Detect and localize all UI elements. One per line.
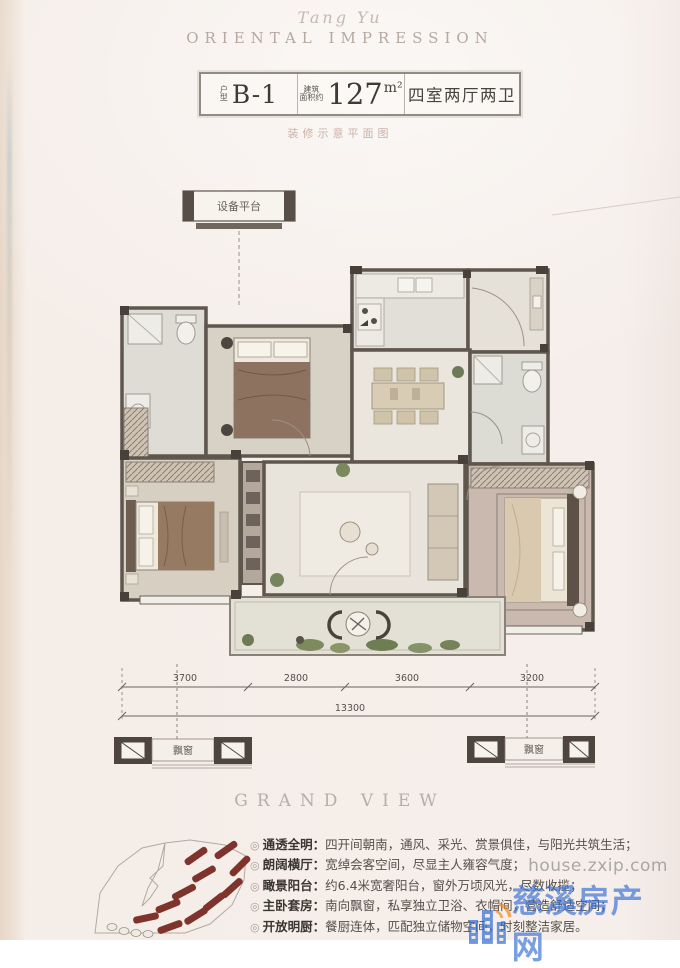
dim-total: 13300 <box>335 703 365 714</box>
watermark-site-name: 慈溪房产网 <box>512 876 676 968</box>
section-title: GRAND VIEW <box>0 791 680 811</box>
dim-3600: 3600 <box>395 673 419 684</box>
bay-window-right-label: 飘窗 <box>524 743 544 756</box>
dim-3700: 3700 <box>173 673 197 684</box>
bay-window-left-plan <box>140 596 232 604</box>
dimension-labels: 3700 2800 3600 3200 13300 <box>173 673 544 714</box>
room-entry <box>468 270 548 352</box>
bullet-icon: ◎ <box>250 900 260 913</box>
bullet-icon: ◎ <box>250 880 260 893</box>
bullet-icon: ◎ <box>250 839 260 852</box>
bay-window-detail-right: 飘窗 <box>467 736 595 767</box>
equipment-platform-label: 设备平台 <box>217 199 261 213</box>
room-bath-1 <box>122 308 206 458</box>
bay-window-detail-left: 飘窗 <box>114 737 252 768</box>
watermark-url: house.zxip.com <box>528 856 668 876</box>
equipment-platform: 设备平台 <box>183 191 295 306</box>
room-bedroom-2 <box>122 458 240 600</box>
room-bath-2 <box>470 352 548 464</box>
tv-wall <box>242 462 264 584</box>
bullet-icon: ◎ <box>250 921 260 934</box>
bay-window-left-label: 飘窗 <box>173 744 193 757</box>
dim-3200: 3200 <box>520 673 544 684</box>
bullet-icon: ◎ <box>250 859 260 872</box>
room-kitchen <box>352 270 468 350</box>
watermark-building-icon <box>466 898 512 946</box>
feature-item: ◎通透全明：四开间朝南，通风、采光、赏景俱佳，与阳光共筑生活； <box>250 835 678 855</box>
balcony <box>230 597 505 655</box>
site-map <box>95 840 252 938</box>
room-living <box>264 462 465 595</box>
brochure-page: Tang Yu ORIENTAL IMPRESSION 户型 B-1 建筑面积约… <box>0 0 680 940</box>
watermark: house.zxip.com 慈溪房产网 <box>466 854 678 940</box>
room-bedroom-3 <box>206 326 352 456</box>
room-dining-hall <box>352 350 470 462</box>
dim-2800: 2800 <box>284 673 308 684</box>
